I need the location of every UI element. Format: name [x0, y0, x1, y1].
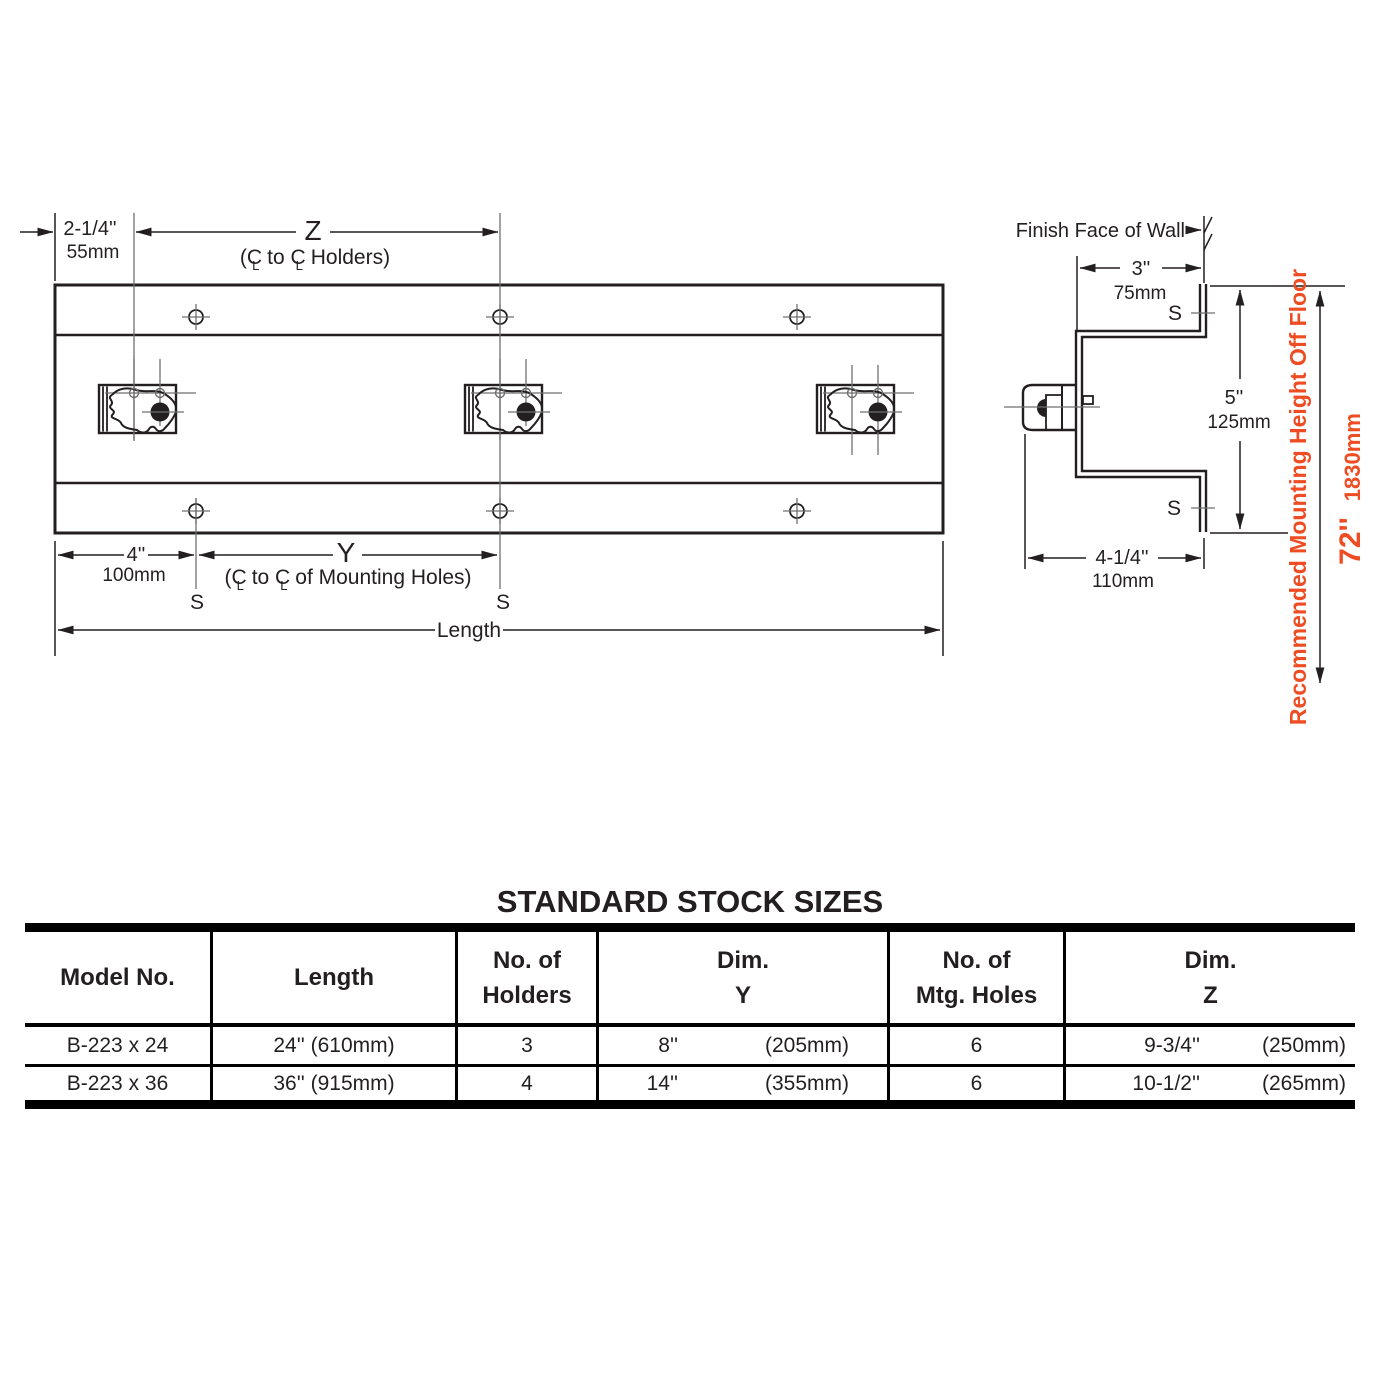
- mount-height-value: 72''1830mm: [1334, 413, 1367, 565]
- row2-mtg-holes: 6: [887, 1067, 1063, 1100]
- header-dim-z: Dim.Z: [1063, 932, 1355, 1027]
- dim-offset-mm: 55mm: [67, 242, 120, 263]
- row1-mtg-holes: 6: [887, 1027, 1063, 1067]
- row2-holders: 4: [455, 1067, 596, 1100]
- length-label: Length: [437, 619, 501, 642]
- header-holders: No. ofHolders: [455, 932, 596, 1027]
- mounting-stud: [1083, 396, 1093, 404]
- dim-z-label: Z: [304, 215, 321, 246]
- dim-height-inches: 5'': [1225, 387, 1244, 409]
- dim-y-sublabel: (CL to CL of Mounting Holes): [224, 566, 471, 593]
- row1-model: B-223 x 24: [25, 1027, 210, 1067]
- dim-proj-inches: 4-1/4'': [1095, 547, 1148, 569]
- dim-spacing-mm: 100mm: [102, 565, 165, 586]
- row2-model: B-223 x 36: [25, 1067, 210, 1100]
- table-bottom-rule: [25, 1100, 1355, 1109]
- strip-outline: [55, 285, 943, 533]
- row2-dim-z: 10-1/2''(265mm): [1063, 1067, 1355, 1100]
- table-top-rule: [25, 923, 1355, 932]
- dim-height-mm: 125mm: [1207, 412, 1270, 433]
- row1-length: 24'' (610mm): [210, 1027, 455, 1067]
- dim-depth-mm: 75mm: [1114, 283, 1167, 304]
- stud-label-2: S: [496, 591, 510, 614]
- stud-label-side-bottom: S: [1167, 497, 1181, 520]
- row1-dim-y: 8''(205mm): [596, 1027, 887, 1067]
- table-title: STANDARD STOCK SIZES: [25, 884, 1355, 920]
- stock-sizes-table: Model No. Length No. ofHolders Dim.Y No.…: [25, 923, 1355, 1109]
- header-length: Length: [210, 932, 455, 1027]
- stud-label-side-top: S: [1168, 302, 1182, 325]
- dim-z-sublabel: (CL to CL Holders): [240, 246, 390, 273]
- dim-spacing-inches: 4'': [127, 544, 146, 566]
- holder-1: [99, 359, 196, 440]
- mount-height-label: Recommended Mounting Height Off Floor: [1285, 269, 1311, 725]
- row2-dim-y: 14''(355mm): [596, 1067, 887, 1100]
- mounting-holes: [182, 304, 811, 524]
- row2-length: 36'' (915mm): [210, 1067, 455, 1100]
- holder-2: [465, 359, 562, 440]
- front-view: 2-1/4'' 55mm Z (CL to CL Holders) 4'' 10…: [20, 213, 943, 656]
- spec-sheet: 2-1/4'' 55mm Z (CL to CL Holders) 4'' 10…: [0, 0, 1379, 1379]
- dim-offset-inches: 2-1/4'': [63, 218, 116, 240]
- holder-3: [817, 365, 914, 455]
- dim-proj-mm: 110mm: [1092, 571, 1154, 592]
- finish-face-label: Finish Face of Wall: [1016, 220, 1185, 242]
- side-view: Finish Face of Wall 3'' 75mm S S: [1004, 216, 1367, 725]
- row1-holders: 3: [455, 1027, 596, 1067]
- profile-inner: [1082, 284, 1206, 532]
- header-mtg-holes: No. ofMtg. Holes: [887, 932, 1063, 1027]
- stud-label-1: S: [190, 591, 204, 614]
- dim-y-label: Y: [337, 537, 356, 568]
- row1-dim-z: 9-3/4''(250mm): [1063, 1027, 1355, 1067]
- header-model: Model No.: [25, 932, 210, 1027]
- holder-side-profile: [1004, 385, 1100, 430]
- header-dim-y: Dim.Y: [596, 932, 887, 1027]
- dim-depth-inches: 3'': [1132, 258, 1151, 280]
- technical-drawing: 2-1/4'' 55mm Z (CL to CL Holders) 4'' 10…: [0, 0, 1379, 800]
